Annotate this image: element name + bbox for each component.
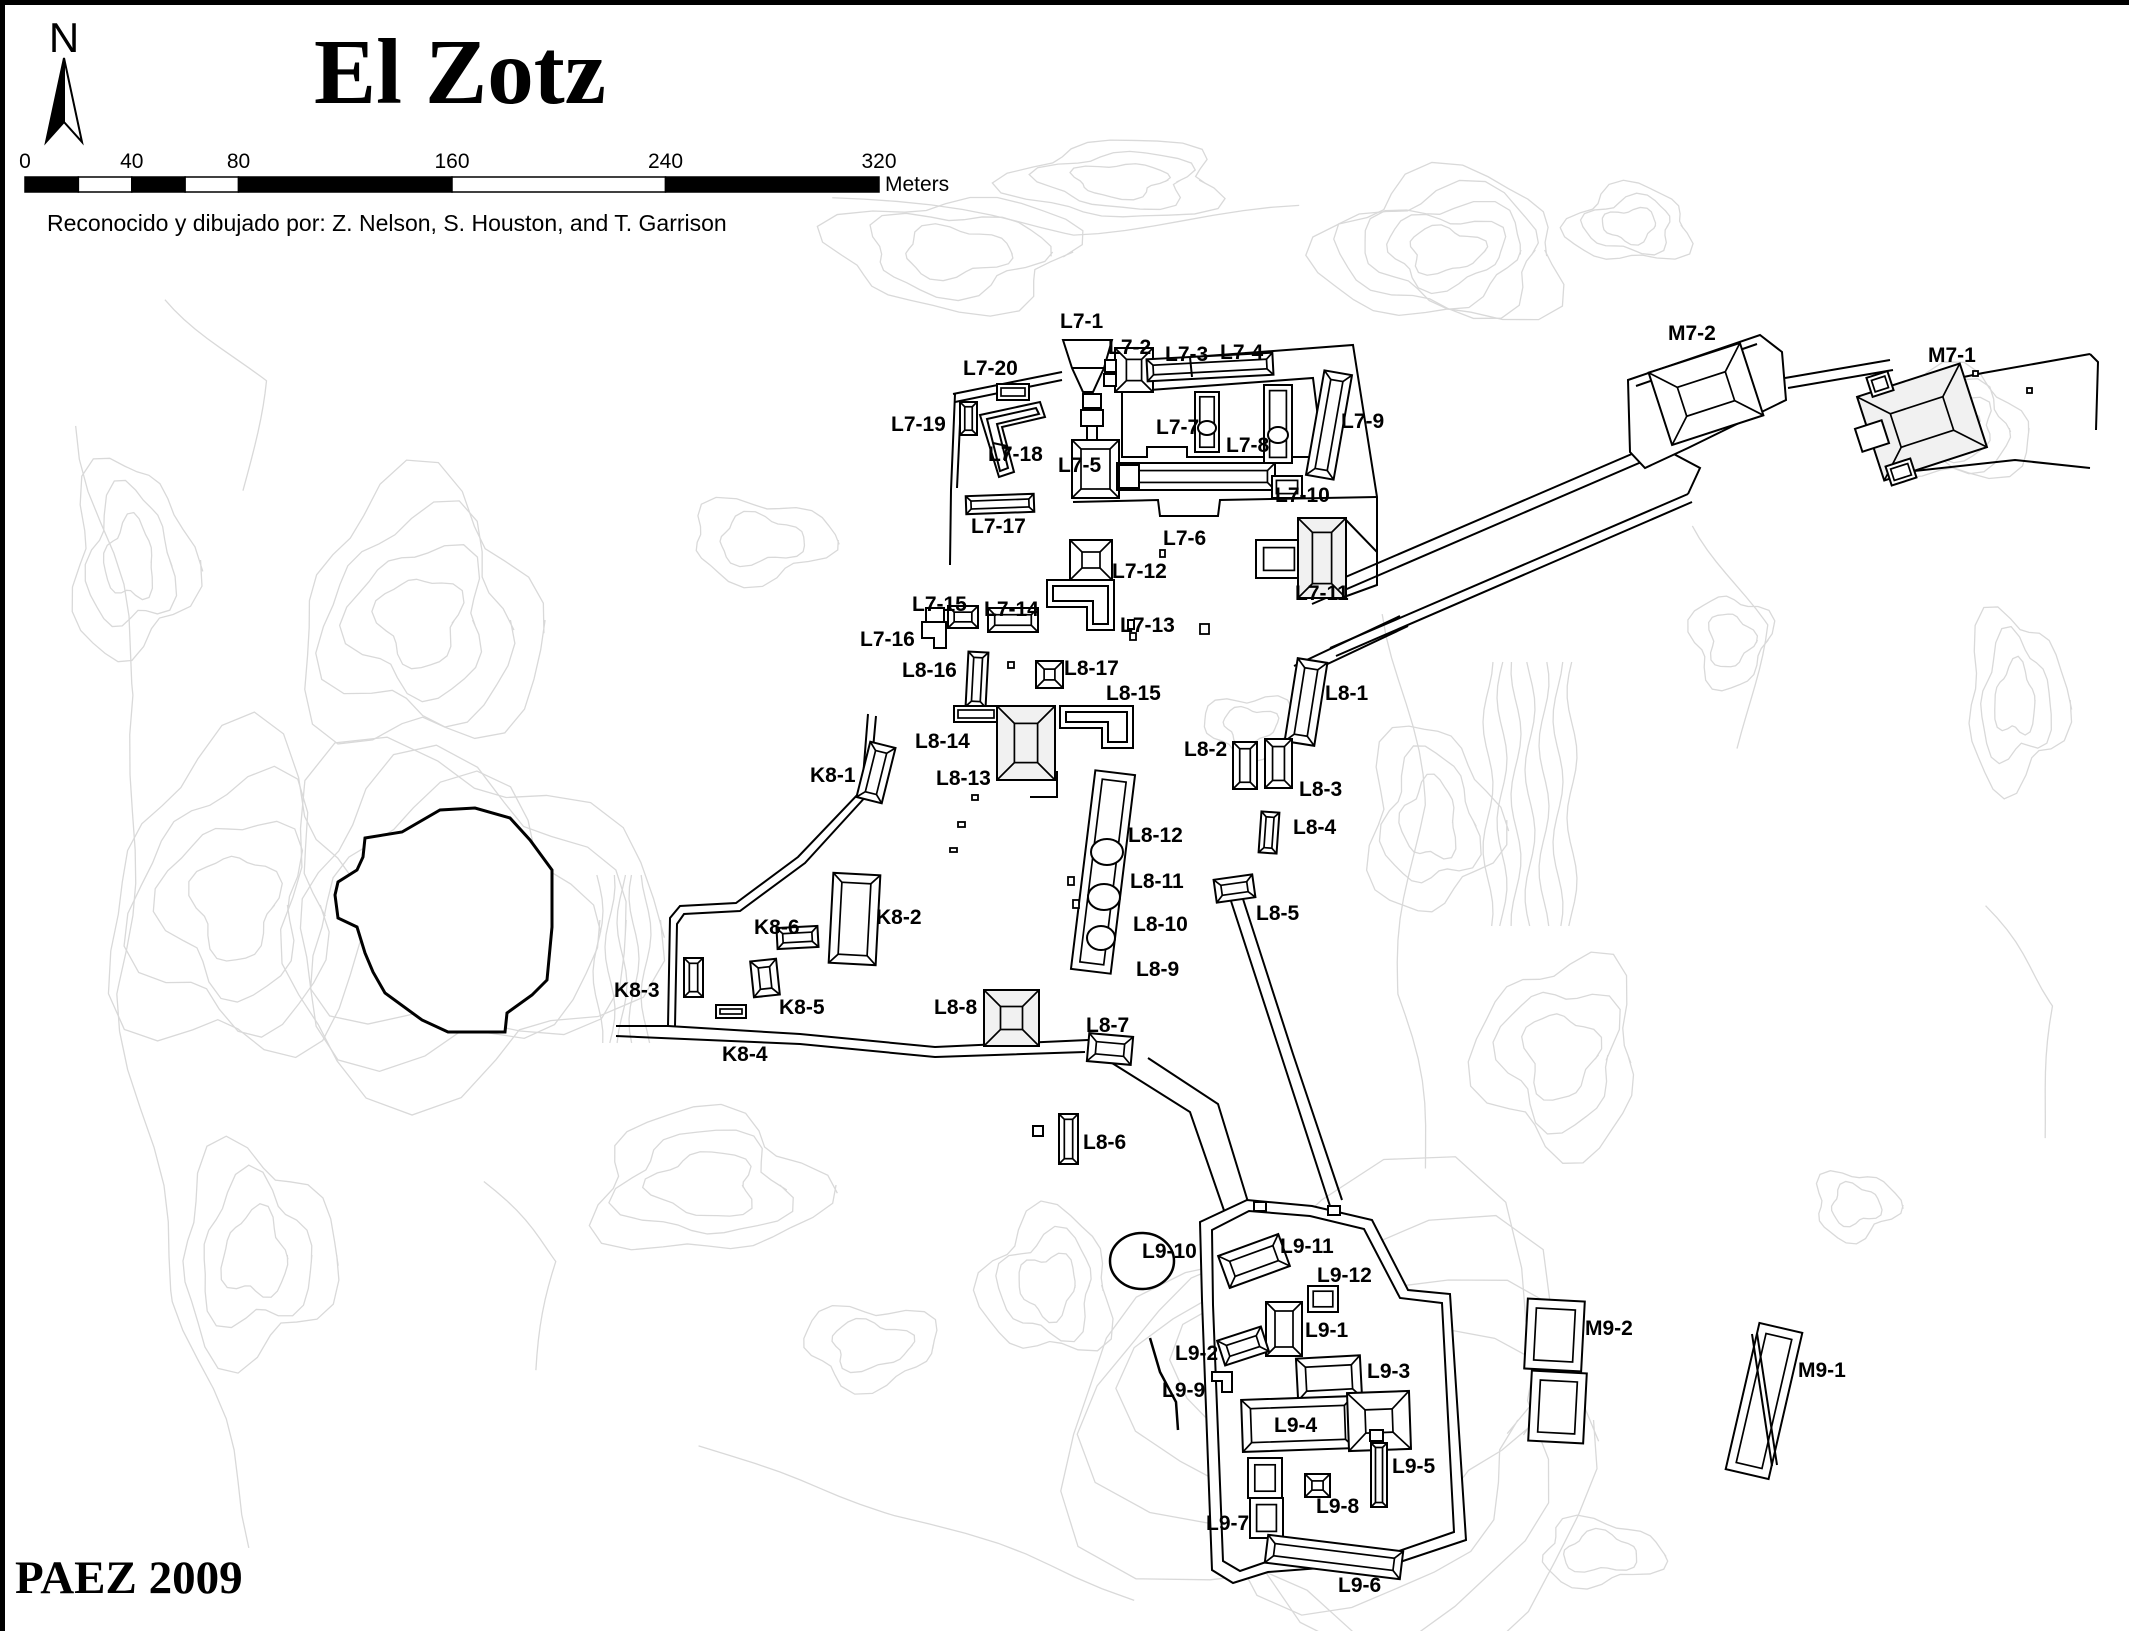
- structure-label-L7-10: L7-10: [1275, 484, 1330, 507]
- map-line-11: [1112, 1063, 1228, 1222]
- contour-slope-0-3: [1525, 662, 1535, 926]
- contour-ring-0-2: [1365, 202, 1521, 310]
- contour-meander-4: [1692, 526, 1767, 749]
- contour-ring-10-1: [804, 1306, 937, 1395]
- structure-L8-8: [984, 990, 1039, 1046]
- structure-label-M9-2: M9-2: [1585, 1317, 1633, 1340]
- structure-L8-13: [997, 706, 1055, 780]
- map-line-31: [1328, 1206, 1340, 1215]
- structure-label-L7-1: L7-1: [1060, 310, 1104, 333]
- north-label: N: [49, 14, 79, 61]
- structure-L9-5: [1371, 1443, 1387, 1507]
- contour-ring-9-2: [1468, 952, 1633, 1163]
- structure-label-L7-15: L7-15: [912, 593, 967, 616]
- scale-tick-160: 160: [434, 150, 469, 173]
- scale-bar-segment-2: [132, 177, 185, 192]
- contour-ring-12-2: [817, 197, 1083, 316]
- structure-label-L7-7: L7-7: [1156, 416, 1199, 439]
- structure-K8-2: [829, 873, 881, 965]
- structure-label-L8-13: L8-13: [936, 767, 991, 790]
- structure-label-K8-6: K8-6: [754, 916, 800, 939]
- structure-label-L7-20: L7-20: [963, 357, 1018, 380]
- structure-L8-2: [1233, 742, 1257, 789]
- minor-mound-9: [1973, 371, 1978, 376]
- structure-K8-1: [856, 742, 895, 804]
- map-line-55: [1268, 427, 1288, 443]
- contour-ring-4-3: [108, 712, 363, 1057]
- contour-ring-17-1: [85, 480, 176, 626]
- contour-ring-13-2: [1969, 607, 2072, 799]
- contour-meander-7: [165, 300, 267, 491]
- contour-ring-13-0: [1995, 656, 2035, 735]
- structure-label-L7-18: L7-18: [988, 443, 1043, 466]
- contour-ring-4-1: [153, 821, 302, 1002]
- contour-slope-0-5: [1553, 662, 1563, 926]
- contour-ring-21-0: [1709, 614, 1758, 667]
- structure-label-L9-8: L9-8: [1316, 1495, 1360, 1518]
- contour-meander-2: [1382, 614, 1425, 1168]
- contour-ring-3-0: [372, 579, 464, 668]
- map-line-43: [1081, 410, 1103, 426]
- structure-label-L8-11: L8-11: [1130, 870, 1184, 893]
- structure-L7-6: [1117, 463, 1275, 490]
- scale-bar-segment-5: [452, 177, 666, 192]
- contour-ring-20-1: [1029, 151, 1195, 209]
- structure-label-L8-6: L8-6: [1083, 1131, 1126, 1154]
- north-arrow-right-wing: [64, 58, 82, 142]
- footer-text: PAEZ 2009: [15, 1552, 243, 1604]
- scale-bar-segment-0: [25, 177, 78, 192]
- scale-bar: 04080160240320: [19, 150, 896, 192]
- map-line-12: [1148, 1058, 1252, 1215]
- structure-M9-2: [1524, 1299, 1585, 1372]
- structure-label-M7-1: M7-1: [1928, 344, 1976, 367]
- contour-ring-12-0: [906, 224, 1013, 281]
- contour-slope-1-1: [605, 875, 615, 1043]
- structure-L8-3: [1265, 739, 1292, 788]
- structure-label-L7-6: L7-6: [1163, 527, 1206, 550]
- structure-label-L8-12: L8-12: [1128, 824, 1183, 847]
- structures-layer: [335, 335, 2098, 1583]
- structure-label-L8-16: L8-16: [902, 659, 957, 682]
- contour-slope-0-2: [1511, 662, 1521, 926]
- contour-ring-13-1: [1981, 627, 2052, 764]
- structure-L9-12: [1308, 1286, 1338, 1312]
- contour-ring-6-2: [589, 1104, 837, 1249]
- map-line-20: [1294, 616, 1400, 666]
- contour-ring-7-0: [1019, 1253, 1075, 1322]
- minor-mound-5: [958, 822, 965, 827]
- structure-label-L9-7: L9-7: [1206, 1512, 1249, 1535]
- structure-label-M9-1: M9-1: [1798, 1359, 1846, 1382]
- contour-ring-14-1: [1816, 1171, 1903, 1244]
- map-line-18: [1336, 502, 1692, 656]
- structure-L7-11: [1256, 540, 1302, 578]
- scale-bar-segment-3: [185, 177, 238, 192]
- structure-label-K8-1: K8-1: [810, 764, 856, 787]
- map-line-1: [1073, 497, 1377, 516]
- structure-label-L7-12: L7-12: [1112, 560, 1167, 583]
- structure-L7-17: [966, 494, 1035, 514]
- contour-slope-1-0: [593, 875, 603, 1043]
- contour-ring-12-1: [870, 213, 1053, 300]
- map-line-17: [1330, 494, 1688, 648]
- minor-mound-4: [972, 795, 978, 800]
- contour-ring-4-0: [189, 856, 282, 961]
- structure-label-M7-2: M7-2: [1668, 322, 1716, 345]
- structure-label-L7-13: L7-13: [1120, 614, 1175, 637]
- contour-ring-7-1: [996, 1226, 1091, 1341]
- structure-L8-1: [1285, 658, 1328, 746]
- structure-L8-14: [954, 706, 998, 722]
- map-line-49: [1104, 374, 1116, 386]
- structure-label-L9-5: L9-5: [1392, 1455, 1436, 1478]
- map-line-15: [1306, 444, 1655, 594]
- structure-L9-1: [1266, 1302, 1302, 1356]
- structure-label-L8-5: L8-5: [1256, 902, 1300, 925]
- structure-label-L8-7: L8-7: [1086, 1014, 1129, 1037]
- contour-ring-18-0: [1399, 774, 1456, 859]
- north-arrow: N: [46, 14, 82, 142]
- scale-unit-label: Meters: [885, 173, 949, 196]
- structure-label-L9-6: L9-6: [1338, 1574, 1381, 1597]
- contour-meander-3: [832, 198, 1299, 235]
- structure-label-L7-19: L7-19: [891, 413, 946, 436]
- contour-ring-21-1: [1688, 596, 1775, 691]
- contour-ring-9-0: [1522, 1014, 1602, 1100]
- map-line-102: [1033, 1126, 1043, 1136]
- structure-label-K8-4: K8-4: [722, 1043, 768, 1066]
- scale-tick-320: 320: [861, 150, 896, 173]
- structure-M9-1: [1726, 1323, 1803, 1479]
- minor-mound-3: [1200, 624, 1209, 634]
- structure-L9-8: [1305, 1474, 1330, 1497]
- contour-meander-1: [699, 1446, 1135, 1601]
- structure-label-L8-17: L8-17: [1064, 657, 1119, 680]
- structure-label-L9-9: L9-9: [1162, 1379, 1205, 1402]
- structure-L9-7: [1248, 1458, 1282, 1498]
- scale-bar-segment-6: [666, 177, 880, 192]
- map-line-42: [1083, 394, 1101, 408]
- page-border: [0, 0, 2129, 1631]
- scale-tick-240: 240: [648, 150, 683, 173]
- contour-ring-20-0: [1070, 164, 1170, 200]
- site-map-canvas: L7-1L7-2L7-3L7-4L7-20L7-9L7-19L7-7L7-8L7…: [0, 0, 2129, 1631]
- map-line-62: [1344, 520, 1377, 597]
- structure-label-L8-9: L8-9: [1136, 958, 1179, 981]
- contour-meander-0: [76, 426, 249, 1548]
- structure-label-L7-8: L7-8: [1226, 434, 1270, 457]
- contour-ring-18-1: [1379, 746, 1481, 883]
- structure-label-L9-2: L9-2: [1175, 1342, 1218, 1365]
- scale-tick-40: 40: [120, 150, 143, 173]
- map-line-58: [1119, 465, 1139, 488]
- scale-tick-0: 0: [19, 150, 31, 173]
- contour-ring-0-0: [1410, 225, 1487, 275]
- contour-ring-16-1: [204, 1165, 312, 1327]
- structure-label-L8-15: L8-15: [1106, 682, 1161, 705]
- structure-L7-19: [960, 402, 977, 435]
- scale-tick-80: 80: [227, 150, 250, 173]
- map-title: El Zotz: [314, 21, 606, 124]
- structure-K8-4: [716, 1005, 746, 1018]
- scale-bar-segment-1: [78, 177, 131, 192]
- contour-ring-17-2: [72, 458, 203, 661]
- structure-label-K8-5: K8-5: [779, 996, 825, 1019]
- contour-slope-0-1: [1497, 662, 1507, 926]
- contour-ring-16-0: [221, 1204, 288, 1298]
- contour-slope-1-4: [641, 875, 651, 1043]
- contour-ring-3-2: [316, 501, 515, 727]
- minor-mound-6: [950, 848, 957, 852]
- structure-L7-16: [922, 622, 946, 648]
- contour-ring-15-1: [1542, 1515, 1667, 1589]
- map-line-113: [1370, 1430, 1383, 1441]
- structure-K8-3: [684, 958, 703, 997]
- contour-ring-10-0: [832, 1319, 915, 1373]
- contour-ring-15-0: [1564, 1528, 1637, 1572]
- structure-label-L8-2: L8-2: [1184, 738, 1227, 761]
- map-line-30: [1254, 1202, 1266, 1211]
- structure-label-L8-8: L8-8: [934, 996, 978, 1019]
- contour-ring-1-0: [1602, 207, 1655, 245]
- structure-label-L7-9: L7-9: [1341, 410, 1384, 433]
- structure-label-K8-2: K8-2: [876, 906, 922, 929]
- structure-label-K8-3: K8-3: [614, 979, 660, 1002]
- structure-K8-5: [750, 959, 780, 998]
- contour-slope-0-6: [1567, 662, 1577, 926]
- contour-ring-3-1: [340, 545, 482, 702]
- contour-ring-7-2: [973, 1201, 1113, 1351]
- map-line-86: [1088, 884, 1120, 910]
- contour-ring-19-0: [720, 511, 804, 566]
- structure-label-L9-1: L9-1: [1305, 1319, 1349, 1342]
- map-line-25: [2090, 354, 2098, 430]
- credit-text: Reconocido y dibujado por: Z. Nelson, S.…: [47, 210, 727, 236]
- north-arrow-left-wing: [46, 58, 64, 142]
- structure-label-L7-14: L7-14: [984, 598, 1039, 621]
- map-line-115: [1250, 1498, 1283, 1538]
- map-line-5: [950, 394, 955, 565]
- map-line-48: [1105, 360, 1116, 372]
- minor-mound-8: [1073, 900, 1079, 908]
- structure-label-L8-14: L8-14: [915, 730, 970, 753]
- structure-L8-6: [1059, 1114, 1078, 1164]
- structure-aguada: [335, 808, 552, 1032]
- structure-label-L8-10: L8-10: [1133, 913, 1188, 936]
- minor-mound-7: [1068, 877, 1074, 885]
- structure-label-L9-3: L9-3: [1367, 1360, 1410, 1383]
- contour-ring-6-1: [609, 1130, 793, 1234]
- contour-ring-17-0: [104, 513, 153, 600]
- map-line-87: [1087, 926, 1115, 950]
- map-line-14: [1243, 899, 1342, 1200]
- structure-label-L8-3: L8-3: [1299, 778, 1342, 801]
- minor-mound-2: [1160, 550, 1165, 557]
- contour-slope-1-3: [629, 875, 639, 1043]
- map-line-53: [1198, 421, 1216, 435]
- structure-label-L7-17: L7-17: [971, 515, 1026, 538]
- contour-slope-0-4: [1539, 662, 1549, 926]
- structure-label-L9-11: L9-11: [1280, 1235, 1334, 1258]
- structure-label-L7-11: L7-11: [1295, 582, 1349, 605]
- structure-L7-20: [997, 384, 1029, 400]
- structure-L8-4: [1259, 811, 1280, 853]
- contour-meander-6: [1986, 906, 2053, 1138]
- contour-ring-6-0: [643, 1152, 752, 1216]
- map-line-13: [1231, 901, 1330, 1206]
- minor-mound-10: [2027, 388, 2032, 393]
- structure-label-L7-4: L7-4: [1220, 341, 1264, 364]
- minor-mound-0: [1008, 662, 1014, 668]
- contour-ring-1-1: [1581, 193, 1670, 255]
- structure-label-L9-4: L9-4: [1274, 1414, 1318, 1437]
- structure-L8-5: [1214, 874, 1256, 902]
- map-line-85: [1091, 839, 1123, 865]
- structure-label-L7-2: L7-2: [1108, 336, 1151, 359]
- structure-label-L8-1: L8-1: [1325, 682, 1369, 705]
- structure-L8-17: [1036, 661, 1063, 688]
- scale-bar-segment-4: [239, 177, 453, 192]
- structure-label-L9-10: L9-10: [1142, 1240, 1197, 1263]
- map-stage: L7-1L7-2L7-3L7-4L7-20L7-9L7-19L7-7L7-8L7…: [0, 0, 2129, 1631]
- contour-ring-4-2: [124, 766, 329, 1037]
- structure-label-L9-12: L9-12: [1317, 1264, 1372, 1287]
- structure-L8-16: [966, 652, 989, 708]
- contour-ring-19-1: [696, 497, 839, 587]
- contour-ring-14-0: [1832, 1181, 1882, 1226]
- structure-L7-12: [1070, 540, 1112, 580]
- structure-L8-7: [1087, 1033, 1133, 1065]
- structure-label-L7-3: L7-3: [1165, 343, 1208, 366]
- structure-label-L8-4: L8-4: [1293, 816, 1337, 839]
- structure-label-L7-16: L7-16: [860, 628, 915, 651]
- map-line-64: [1047, 580, 1114, 630]
- map-line-119: [1528, 1371, 1587, 1444]
- structure-label-L7-5: L7-5: [1058, 454, 1102, 477]
- contour-meander-5: [484, 1182, 556, 1371]
- contour-ring-0-4: [1306, 162, 1564, 319]
